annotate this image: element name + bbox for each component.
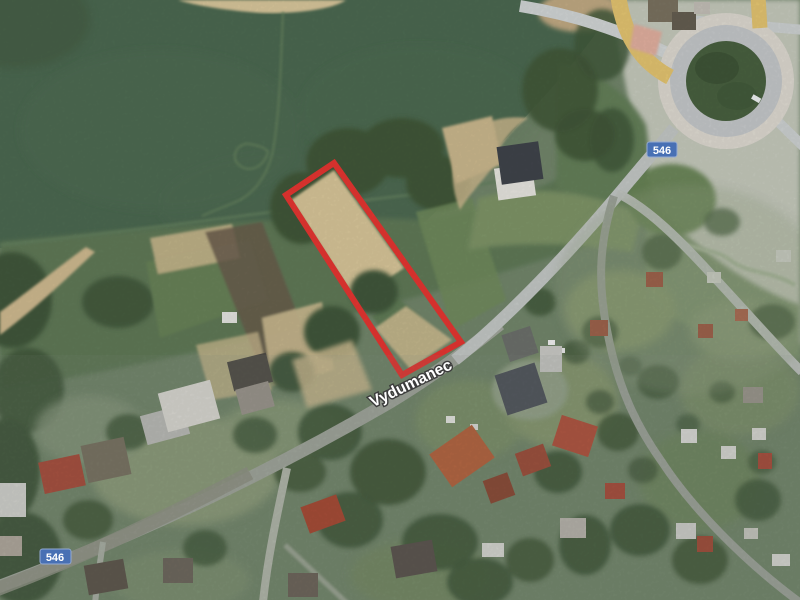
svg-text:546: 546 bbox=[653, 145, 671, 157]
svg-text:546: 546 bbox=[46, 552, 64, 564]
